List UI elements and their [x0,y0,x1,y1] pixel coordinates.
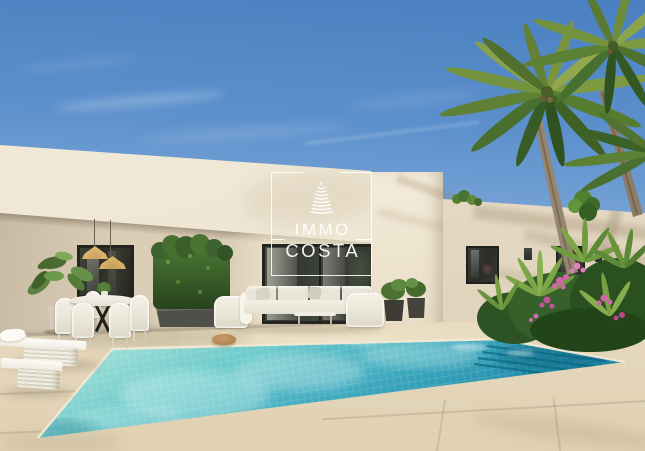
watermark-brand-line1: IMMO [271,221,372,238]
dining-chair [72,303,94,338]
pendant-cord [110,220,111,256]
coffee-table-leg [330,316,332,325]
coffee-table [294,312,336,325]
watermark-border-top-left [271,172,305,173]
lounge-armchair [346,293,384,327]
sofa-pillow [256,287,271,300]
lounger-base-slats [17,368,60,390]
wooden-side-table [212,334,236,345]
sofa-pillow [308,287,322,300]
sun-lounger [0,352,65,392]
watermark: IMMO COSTA [271,172,372,276]
coffee-table-leg [298,316,300,325]
watermark-divider-left [271,239,284,240]
tower-logo-icon [309,181,334,215]
villa-photo: IMMO COSTA [0,0,645,451]
dining-chair [109,303,131,338]
parapet-shrubs [452,190,482,206]
pendant-cord [94,219,95,246]
sofa-shadow [232,326,382,333]
watermark-border-top-right [340,172,372,173]
green-shrub [568,190,600,221]
watermark-brand-line2: COSTA [271,242,372,261]
watermark-border-bottom [271,275,372,276]
dining-chair [130,295,149,331]
